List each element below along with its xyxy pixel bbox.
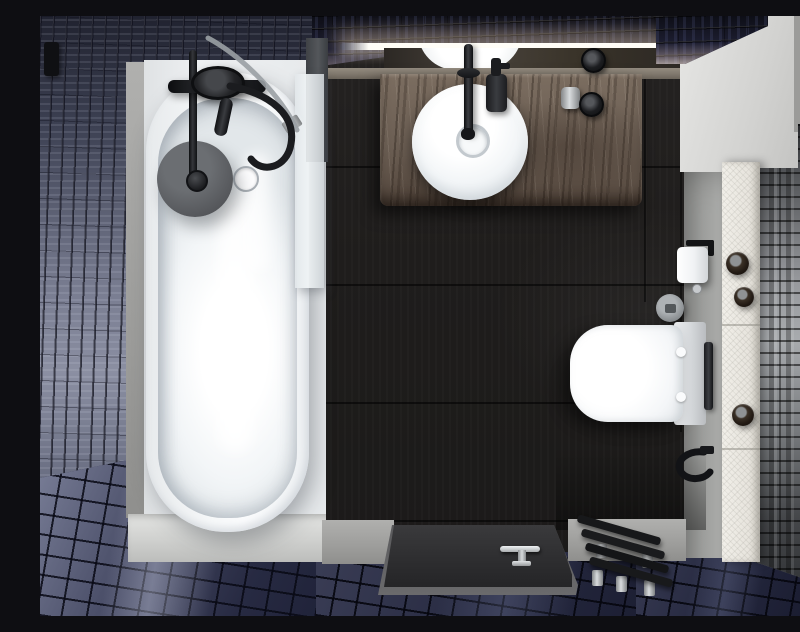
mirror-strip [384,48,698,69]
ledge-seam [722,324,760,326]
stone-ledge [722,162,760,562]
toilet-hinge-dot [676,392,686,402]
toilet-paper-bracket-end [708,240,714,256]
glass-screen [295,74,324,288]
flush-button-slot [665,304,676,313]
shower-tray-basin [384,525,572,587]
wall-vent-fixture [44,42,59,76]
faucet-spout-tip [461,128,475,140]
shower-bench [572,514,672,598]
bathroom-top-view-render [40,16,800,616]
hand-shower-head [191,66,245,100]
toilet-paper-roll [677,247,708,283]
shower-disc-stem [189,50,197,180]
toilet-paper-holder-dot [692,284,702,294]
towel-rail [704,342,713,410]
faucet-escutcheon [457,68,480,78]
ledge-pot [732,404,754,426]
bathtub [146,72,309,532]
top-right-gray-corner [794,16,800,132]
toilet-seat [570,325,683,422]
ledge-pot [726,252,749,275]
soap-dispenser-spout [499,63,510,69]
counter-jar-black [581,48,606,73]
floor-plank-seam [644,52,646,302]
bench-foot [592,570,603,586]
tub-overflow-ring [233,166,259,192]
bench-foot [616,576,627,592]
toilet-hinge-dot [676,347,686,357]
ledge-seam [722,448,760,450]
flush-button [656,294,684,322]
concrete-strip-left [322,520,394,564]
shower-tray-rim [376,525,580,595]
ledge-pot [734,287,754,307]
counter-jar-black [579,92,604,117]
counter-jar-chrome [561,87,580,109]
soap-dispenser [486,74,507,112]
faucet [464,44,473,136]
drain-handle-foot [512,561,531,566]
shower-disc-cap [186,170,208,192]
